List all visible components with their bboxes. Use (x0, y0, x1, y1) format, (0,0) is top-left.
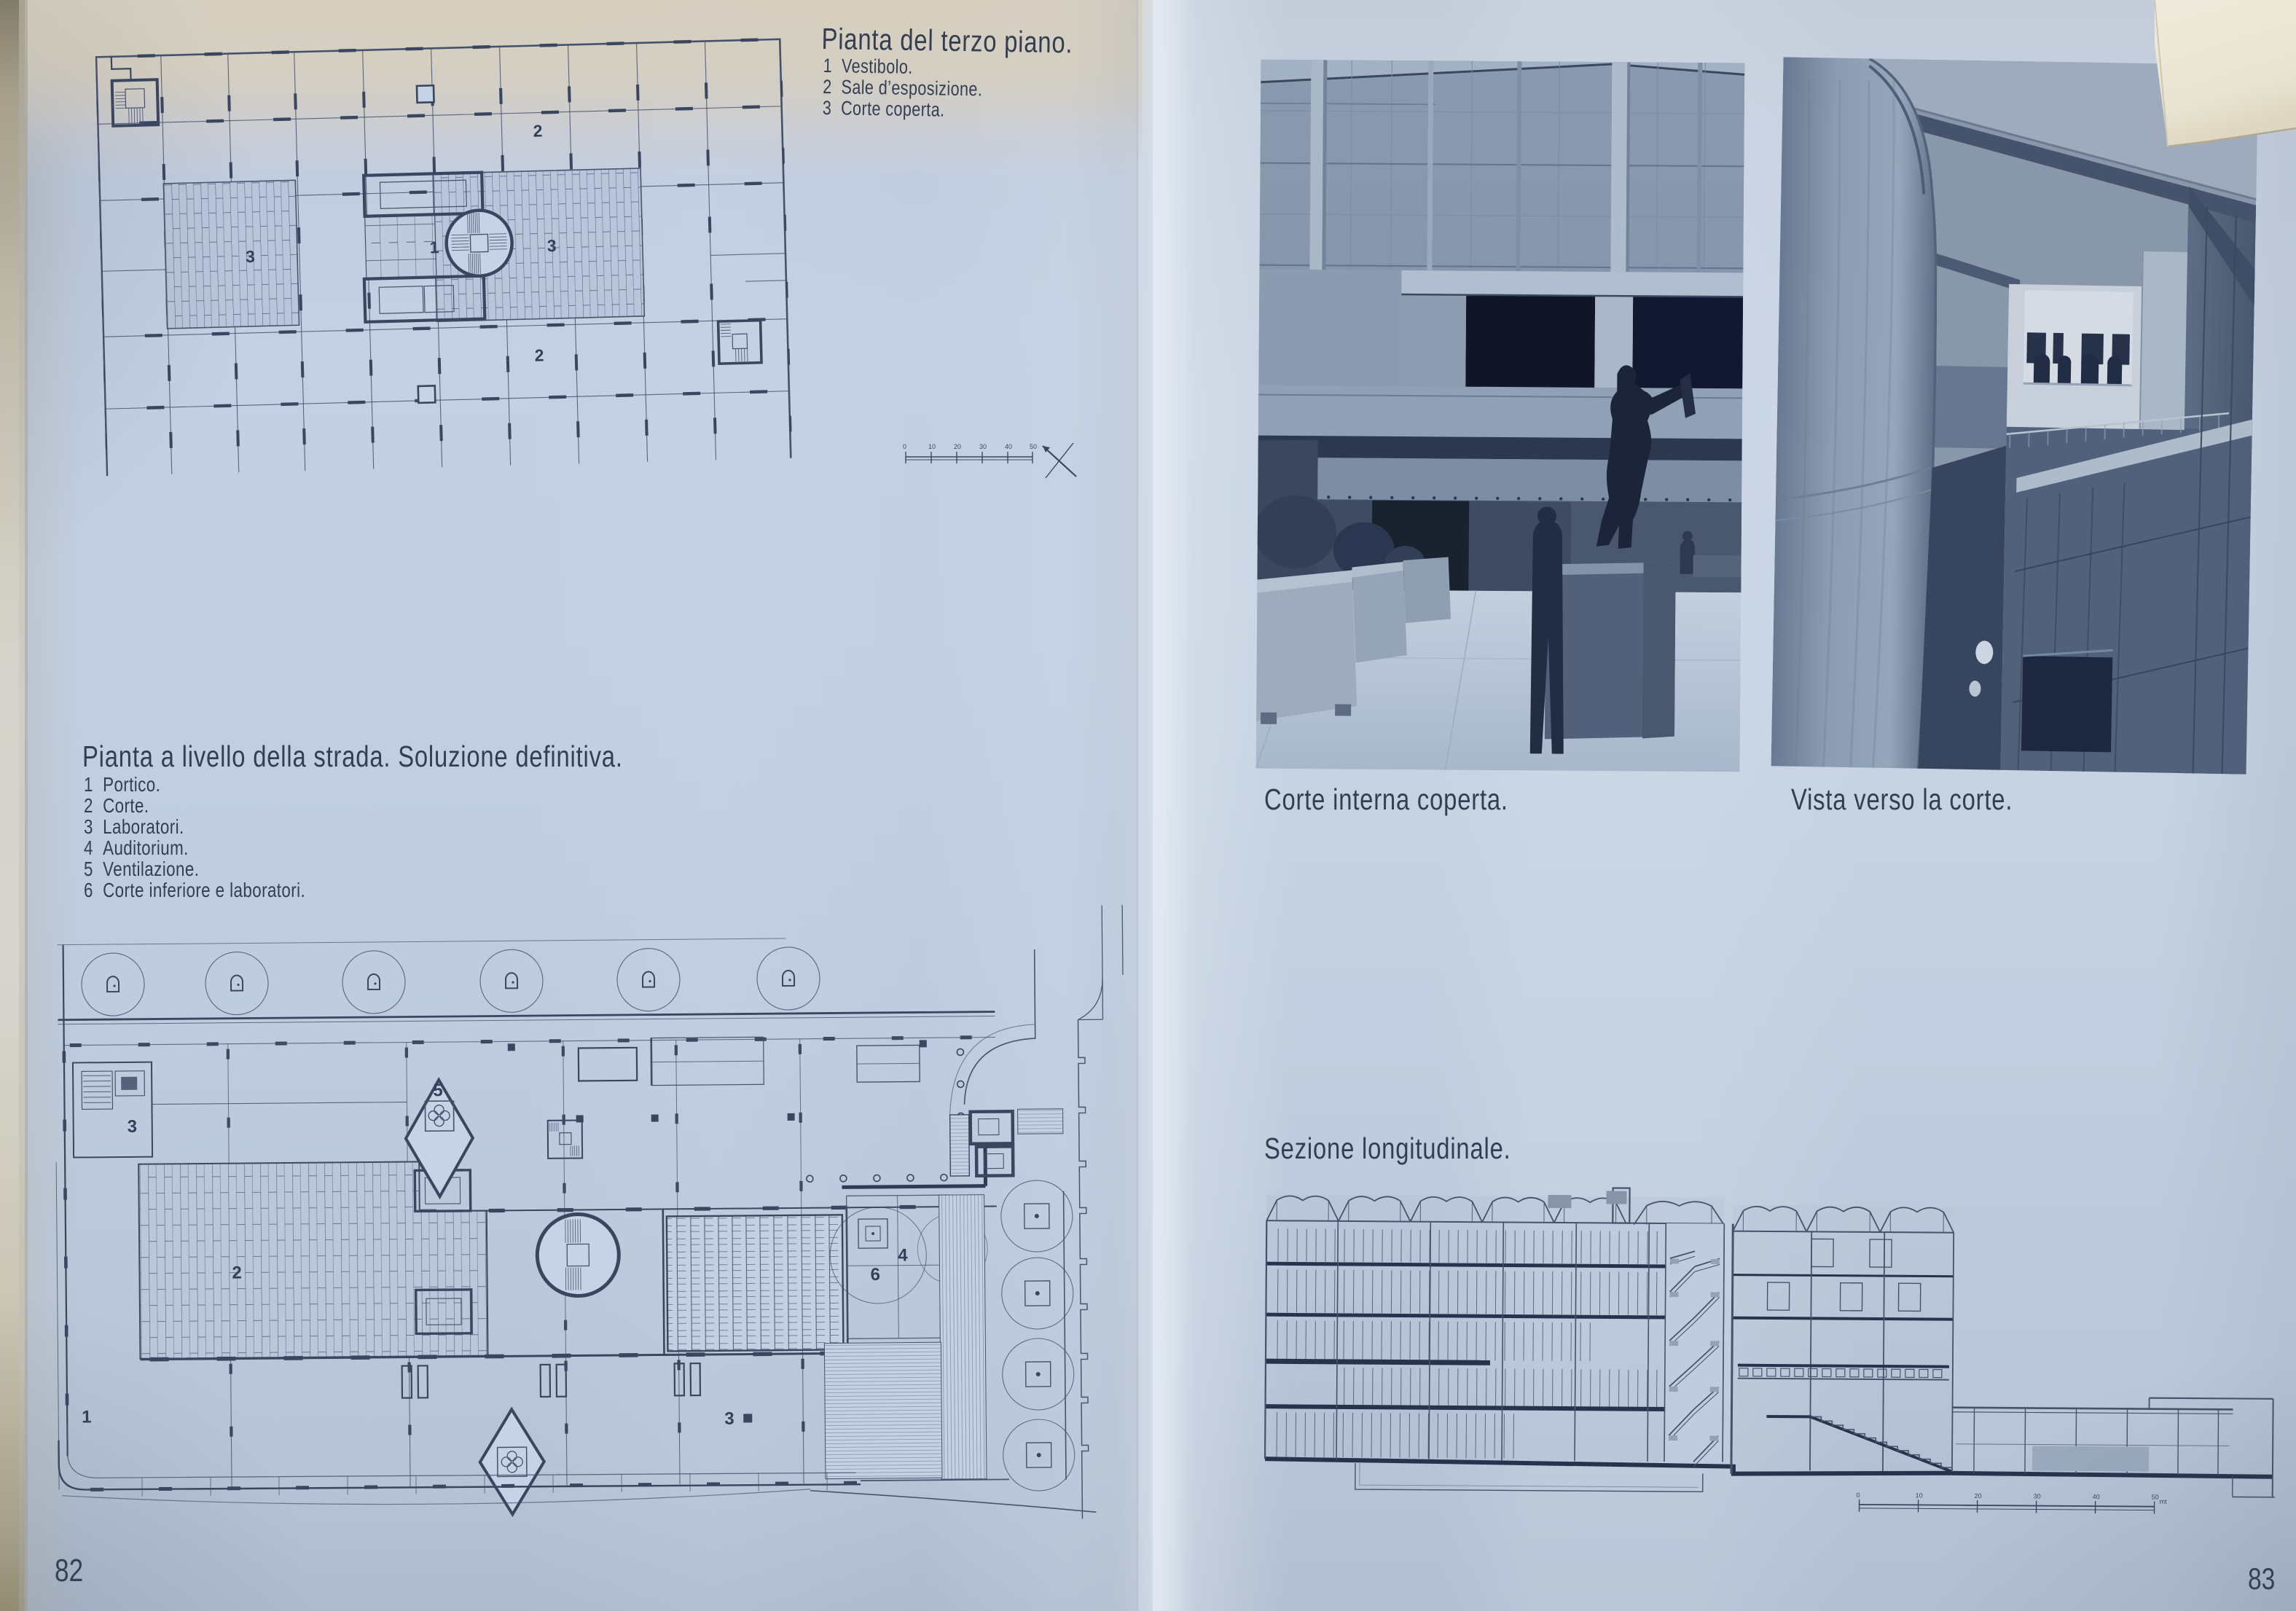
svg-text:1: 1 (429, 238, 439, 256)
svg-text:30: 30 (979, 443, 987, 450)
svg-text:mt: mt (2160, 1498, 2168, 1505)
svg-text:20: 20 (954, 443, 961, 450)
svg-text:40: 40 (1005, 443, 1012, 450)
svg-text:10: 10 (1916, 1492, 1923, 1499)
svg-text:5: 5 (433, 1081, 443, 1100)
svg-text:2: 2 (534, 345, 544, 364)
svg-text:3: 3 (246, 247, 255, 266)
svg-text:3: 3 (546, 236, 556, 255)
svg-text:2: 2 (232, 1263, 242, 1283)
svg-text:0: 0 (903, 443, 906, 450)
svg-text:3: 3 (128, 1117, 138, 1137)
svg-text:6: 6 (870, 1265, 880, 1285)
svg-text:50: 50 (1030, 443, 1037, 450)
svg-text:3: 3 (724, 1409, 734, 1429)
svg-text:20: 20 (1975, 1492, 1982, 1500)
svg-text:2: 2 (533, 121, 542, 140)
svg-text:10: 10 (928, 443, 936, 450)
svg-text:30: 30 (2034, 1493, 2041, 1500)
svg-text:0: 0 (1857, 1492, 1860, 1499)
svg-text:1: 1 (82, 1407, 92, 1427)
svg-text:40: 40 (2093, 1493, 2100, 1500)
svg-text:50: 50 (2152, 1494, 2159, 1501)
svg-text:4: 4 (898, 1246, 908, 1266)
